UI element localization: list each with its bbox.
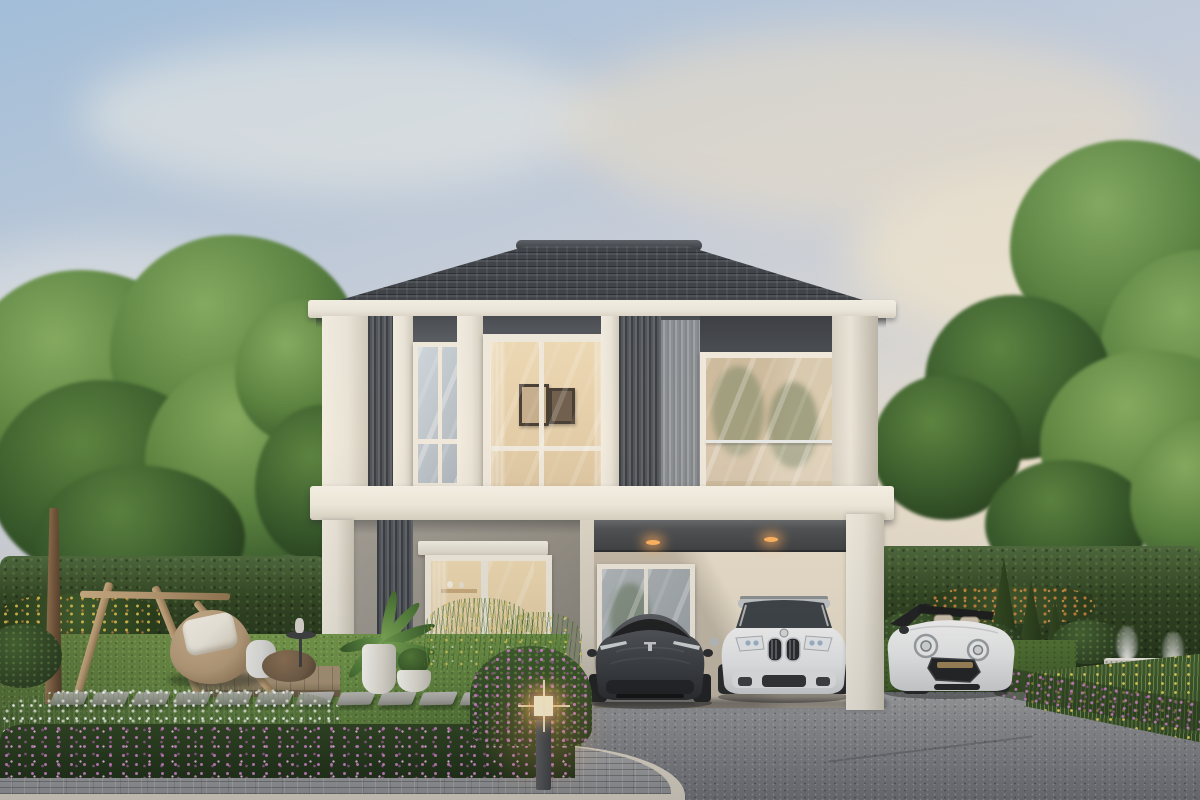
shelf-decor: [459, 582, 464, 588]
side-table-stem: [299, 637, 302, 667]
stepping-stone: [336, 692, 376, 706]
upper-louvre-centre-dark: [619, 316, 661, 487]
cloud: [80, 40, 600, 190]
carport-ceiling: [594, 520, 846, 552]
white-mini-convertible: [874, 600, 1024, 700]
frame-column: [393, 316, 413, 490]
ottoman-pouf: [262, 650, 316, 682]
upper-louvre-centre-light: [661, 320, 701, 487]
shelf-decor: [447, 581, 453, 588]
floor-slab-band: [310, 486, 894, 520]
glass-reflection: [491, 342, 609, 492]
corner-pillar-left: [322, 316, 368, 490]
frame-column: [457, 316, 483, 490]
window-header-panel: [700, 316, 832, 352]
stepping-stone: [418, 692, 458, 706]
window-transom: [418, 439, 462, 444]
upper-window-right: [700, 352, 844, 499]
upper-window-centre: [483, 334, 617, 500]
fountain-jet: [1116, 626, 1138, 660]
upper-louvre-left: [368, 316, 393, 490]
white-suv-car: [710, 592, 858, 704]
carport-pillar-right: [846, 514, 884, 710]
bollard-lamp-head: [530, 692, 557, 720]
scene-render: [0, 0, 1200, 800]
downlight: [646, 540, 660, 545]
window-mullion: [438, 347, 442, 483]
bollard-lamp-glow: [534, 696, 553, 716]
frame-column: [601, 316, 619, 490]
table-vase: [295, 618, 304, 633]
door-pelmet: [418, 541, 548, 555]
downlight: [764, 537, 778, 542]
tall-white-planter: [362, 644, 396, 694]
balustrade-glass: [706, 443, 838, 481]
bowl-planter: [397, 670, 431, 692]
corner-pillar-right: [832, 316, 878, 490]
